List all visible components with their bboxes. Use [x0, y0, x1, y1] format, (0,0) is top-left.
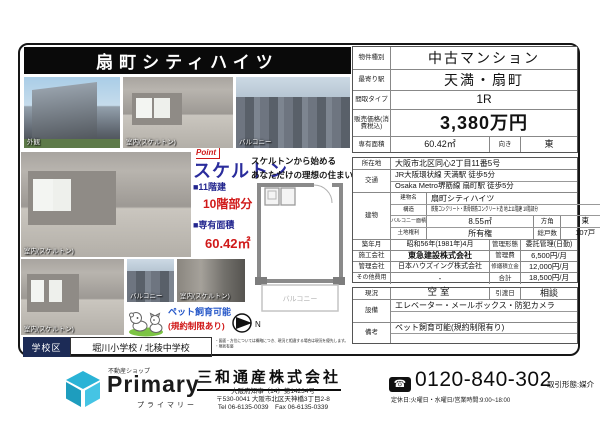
- photo-interior-bottom: 室内(スケルトン): [21, 259, 124, 335]
- company-telfax: Tel 06-6135-0039 Fax 06-6135-0339: [188, 404, 358, 412]
- other-value: -: [391, 273, 489, 284]
- mgmt-fee-label: 管理費: [489, 251, 521, 261]
- flyer-page: 扇町シティハイツ 外観 室内(スケルトン) バルコニー 室内(スケルトン) Po…: [0, 0, 600, 424]
- spec-table-bottom: 現況 空室 引渡日 相談 設備 エレベーター・メールボックス・防犯カメラ 備考 …: [352, 287, 578, 344]
- photo-caption: 室内(スケルトン): [180, 290, 230, 300]
- table-row-other: その他費用 - 合計 18,500円/月: [353, 273, 577, 284]
- photo-interior-top: 室内(スケルトン): [123, 77, 233, 148]
- facilities-value: エレベーター・メールボックス・防犯カメラ: [391, 300, 577, 312]
- handover-label: 引渡日: [489, 288, 521, 299]
- contractor-value: 東急建設株式会社: [391, 251, 489, 261]
- license-number: 大阪府知事〔14〕第14234号: [188, 388, 358, 396]
- cat-eye: [153, 319, 155, 321]
- table-row-built: 築年月 昭和56年(1981年)4月 管理形態 委託管理(日勤): [353, 240, 577, 251]
- dog-eye: [137, 317, 139, 319]
- company-address: 〒530-0041 大阪市北区天神橋3丁目2-8: [188, 396, 358, 404]
- access-line2: Osaka Metro堺筋線 扇町駅 徒歩5分: [391, 182, 577, 193]
- pet-dog-cat-icon: [127, 305, 165, 337]
- access-line1: JR大阪環状線 天満駅 徒歩5分: [391, 170, 577, 182]
- table-row-property-type: 物件種別 中古マンション: [353, 47, 577, 70]
- row-label: 専有面積: [353, 137, 391, 152]
- structure-value-wrap: 鉄筋コンクリート・鉄骨鉄筋コンクリート造 地上11階建 10階部分: [427, 205, 600, 215]
- building-subtable: 建物名 扇町シティハイツ 構造 鉄筋コンクリート・鉄骨鉄筋コンクリート造 地上1…: [391, 193, 600, 239]
- phone-number: 0120-840-302: [415, 368, 552, 392]
- units-label: 総戸数: [533, 228, 561, 239]
- balcony-area-value: 8.55㎡: [427, 216, 533, 227]
- photo-caption: バルコニー: [130, 290, 162, 300]
- floorplan-pillar-right: [333, 277, 345, 285]
- land-value: 所有権: [427, 228, 533, 239]
- photo-caption: 室内(スケルトン): [126, 136, 176, 146]
- floorplan-balcony-label: バルコニー: [283, 295, 318, 303]
- window-shape: [31, 280, 43, 301]
- mgmt-style-value: 委託管理(日勤): [521, 240, 577, 250]
- sub-label: 建物名: [391, 193, 427, 204]
- table-row-facilities: 設備 エレベーター・メールボックス・防犯カメラ: [353, 300, 577, 323]
- pet-allowed-sub: (規約制限あり): [168, 320, 231, 333]
- floorplan-wc-unit: [281, 188, 295, 205]
- disclaimer-line1: ・図面・方位については概略につき、現況と相違する場合は現況を優先します。: [215, 339, 355, 345]
- row-label: 管理会社: [353, 262, 391, 272]
- photo-balcony-small: バルコニー: [127, 259, 174, 302]
- floorplan-diagram: バルコニー: [252, 176, 350, 326]
- row-label: 販売価格(消費税込): [353, 110, 391, 136]
- row-label: 設備: [353, 300, 391, 322]
- direction-value: 東: [561, 216, 600, 227]
- school-district-label: 学校区: [23, 337, 70, 357]
- row-label: その他費用: [353, 273, 391, 284]
- price-value: 3,380万円: [391, 110, 577, 136]
- table-row-layout: 間取タイプ 1R: [353, 91, 577, 110]
- facilities-empty-line: [391, 312, 577, 322]
- built-value: 昭和56年(1981年)4月: [391, 240, 489, 250]
- facing-label: 向き: [489, 137, 521, 152]
- row-label: 所在地: [353, 158, 391, 169]
- spec-table-middle: 所在地 大阪市北区同心2丁目11番5号 交通 JR大阪環状線 天満駅 徒歩5分 …: [352, 157, 578, 283]
- structure-row: 構造 鉄筋コンクリート・鉄骨鉄筋コンクリート造 地上11階建 10階部分: [391, 205, 600, 216]
- pet-allowed-main: ペット飼育可能: [168, 306, 231, 320]
- mgmt-style-label: 管理形態: [489, 240, 521, 250]
- mgmt-fee-value: 6,500円/月: [521, 251, 577, 261]
- spec-table-top: 物件種別 中古マンション 最寄り駅 天満・扇町 間取タイプ 1R 販売価格(消費…: [352, 46, 578, 153]
- table-row-address: 所在地 大阪市北区同心2丁目11番5号: [353, 158, 577, 170]
- business-hours: 定休日:火曜日・水曜日/営業時間:9:00~18:00: [391, 395, 510, 404]
- photo-interior-mid: 室内(スケルトン): [21, 152, 191, 257]
- facilities-lines: エレベーター・メールボックス・防犯カメラ: [391, 300, 577, 322]
- building-name-row: 建物名 扇町シティハイツ: [391, 193, 600, 205]
- row-label: 間取タイプ: [353, 91, 391, 109]
- freedial-phone-icon: ☎: [389, 377, 411, 392]
- window-shape: [136, 98, 151, 118]
- deal-type: 取引形態:媒介: [547, 379, 594, 390]
- row-value: 中古マンション: [391, 47, 577, 69]
- row-label: 備考: [353, 323, 391, 343]
- row-label: 物件種別: [353, 47, 391, 69]
- total-label: 合計: [489, 273, 521, 284]
- sub-label: 土地権利: [391, 228, 427, 239]
- table-row-contractor: 施工会社 東急建設株式会社 管理費 6,500円/月: [353, 251, 577, 262]
- reserve-label: 修繕積立金: [489, 262, 521, 272]
- brand-name: Primary: [107, 371, 200, 398]
- units-value: 107戸: [561, 228, 600, 239]
- pet-allowed-note: ペット飼育可能 (規約制限あり): [168, 306, 231, 333]
- sub-label: 構造: [391, 205, 427, 215]
- table-row-price: 販売価格(消費税込) 3,380万円: [353, 110, 577, 137]
- handover-value: 相談: [521, 288, 577, 299]
- row-label: 施工会社: [353, 251, 391, 261]
- direction-label: 方角: [533, 216, 561, 227]
- primary-cube-logo-icon: [62, 367, 104, 409]
- photo-caption: 室内(スケルトン): [24, 323, 74, 333]
- structure-value: 鉄筋コンクリート・鉄骨鉄筋コンクリート造 地上11階建 10階部分: [431, 207, 538, 214]
- table-row-remarks: 備考 ペット飼育可能(規約制限有り): [353, 323, 577, 343]
- row-label: 建物: [353, 193, 391, 239]
- floors-value: 10階部分: [203, 195, 255, 212]
- row-label: 現況: [353, 288, 391, 299]
- sub-label: バルコニー面積: [391, 216, 427, 227]
- photo-caption: バルコニー: [239, 136, 271, 146]
- photo-exterior: 外観: [24, 77, 120, 148]
- floorplan-pillar-left: [255, 277, 267, 285]
- facing-value: 東: [521, 137, 577, 152]
- remarks-lines: ペット飼育可能(規約制限有り): [391, 323, 577, 343]
- table-row-area: 専有面積 60.42㎡ 向き 東: [353, 137, 577, 152]
- floors-label: ■11階建: [193, 180, 255, 193]
- reserve-value: 12,000円/月: [521, 262, 577, 272]
- table-row-access: 交通 JR大阪環状線 天満駅 徒歩5分 Osaka Metro堺筋線 扇町駅 徒…: [353, 170, 577, 193]
- address-value: 大阪市北区同心2丁目11番5号: [391, 158, 577, 169]
- photo-caption: 外観: [27, 136, 40, 146]
- row-label: 築年月: [353, 240, 391, 250]
- row-value: 1R: [391, 91, 577, 109]
- company-info: 大阪府知事〔14〕第14234号 〒530-0041 大阪市北区天神橋3丁目2-…: [188, 388, 358, 412]
- school-district-value: 堀川小学校 / 北稜中学校: [70, 337, 212, 357]
- photo-caption: 室内(スケルトン): [24, 245, 74, 255]
- north-arrow-icon: N: [230, 310, 264, 336]
- area-value: 60.42㎡: [205, 233, 255, 252]
- row-value: 天満・扇町: [391, 70, 577, 90]
- disclaimer-line2: ・現状有姿: [215, 345, 355, 351]
- area-label: ■専有面積: [193, 218, 255, 231]
- access-lines: JR大阪環状線 天満駅 徒歩5分 Osaka Metro堺筋線 扇町駅 徒歩5分: [391, 170, 577, 192]
- row-label: 最寄り駅: [353, 70, 391, 90]
- building-name-value: 扇町シティハイツ: [427, 193, 600, 204]
- table-row-building: 建物 建物名 扇町シティハイツ 構造 鉄筋コンクリート・鉄骨鉄筋コンクリート造 …: [353, 193, 577, 240]
- dog-ear: [130, 313, 134, 317]
- total-value: 18,500円/月: [521, 273, 577, 284]
- remarks-empty-line: [391, 334, 577, 342]
- photo-interior-small: 室内(スケルトン): [177, 259, 245, 302]
- photo-balcony-view: バルコニー: [236, 77, 350, 148]
- table-row-mgmt-company: 管理会社 日本ハウズイング株式会社 修繕積立金 12,000円/月: [353, 262, 577, 273]
- row-label: 交通: [353, 170, 391, 192]
- table-row-station: 最寄り駅 天満・扇町: [353, 70, 577, 91]
- catch-copy-line1: スケルトンから始める: [251, 154, 353, 168]
- disclaimer-notes: ・図面・方位については概略につき、現況と相違する場合は現況を優先します。 ・現状…: [215, 339, 355, 351]
- table-row-status: 現況 空室 引渡日 相談: [353, 288, 577, 300]
- compass-north-label: N: [255, 320, 261, 329]
- mgmt-company-value: 日本ハウズイング株式会社: [391, 262, 489, 272]
- remarks-value: ペット飼育可能(規約制限有り): [391, 323, 577, 334]
- status-value: 空室: [391, 288, 489, 299]
- property-title: 扇町シティハイツ: [24, 47, 351, 74]
- window-shape: [33, 179, 53, 211]
- land-row: 土地権利 所有権 総戸数 107戸: [391, 228, 600, 239]
- balcony-area-row: バルコニー面積 8.55㎡ 方角 東: [391, 216, 600, 228]
- area-value: 60.42㎡: [391, 137, 489, 152]
